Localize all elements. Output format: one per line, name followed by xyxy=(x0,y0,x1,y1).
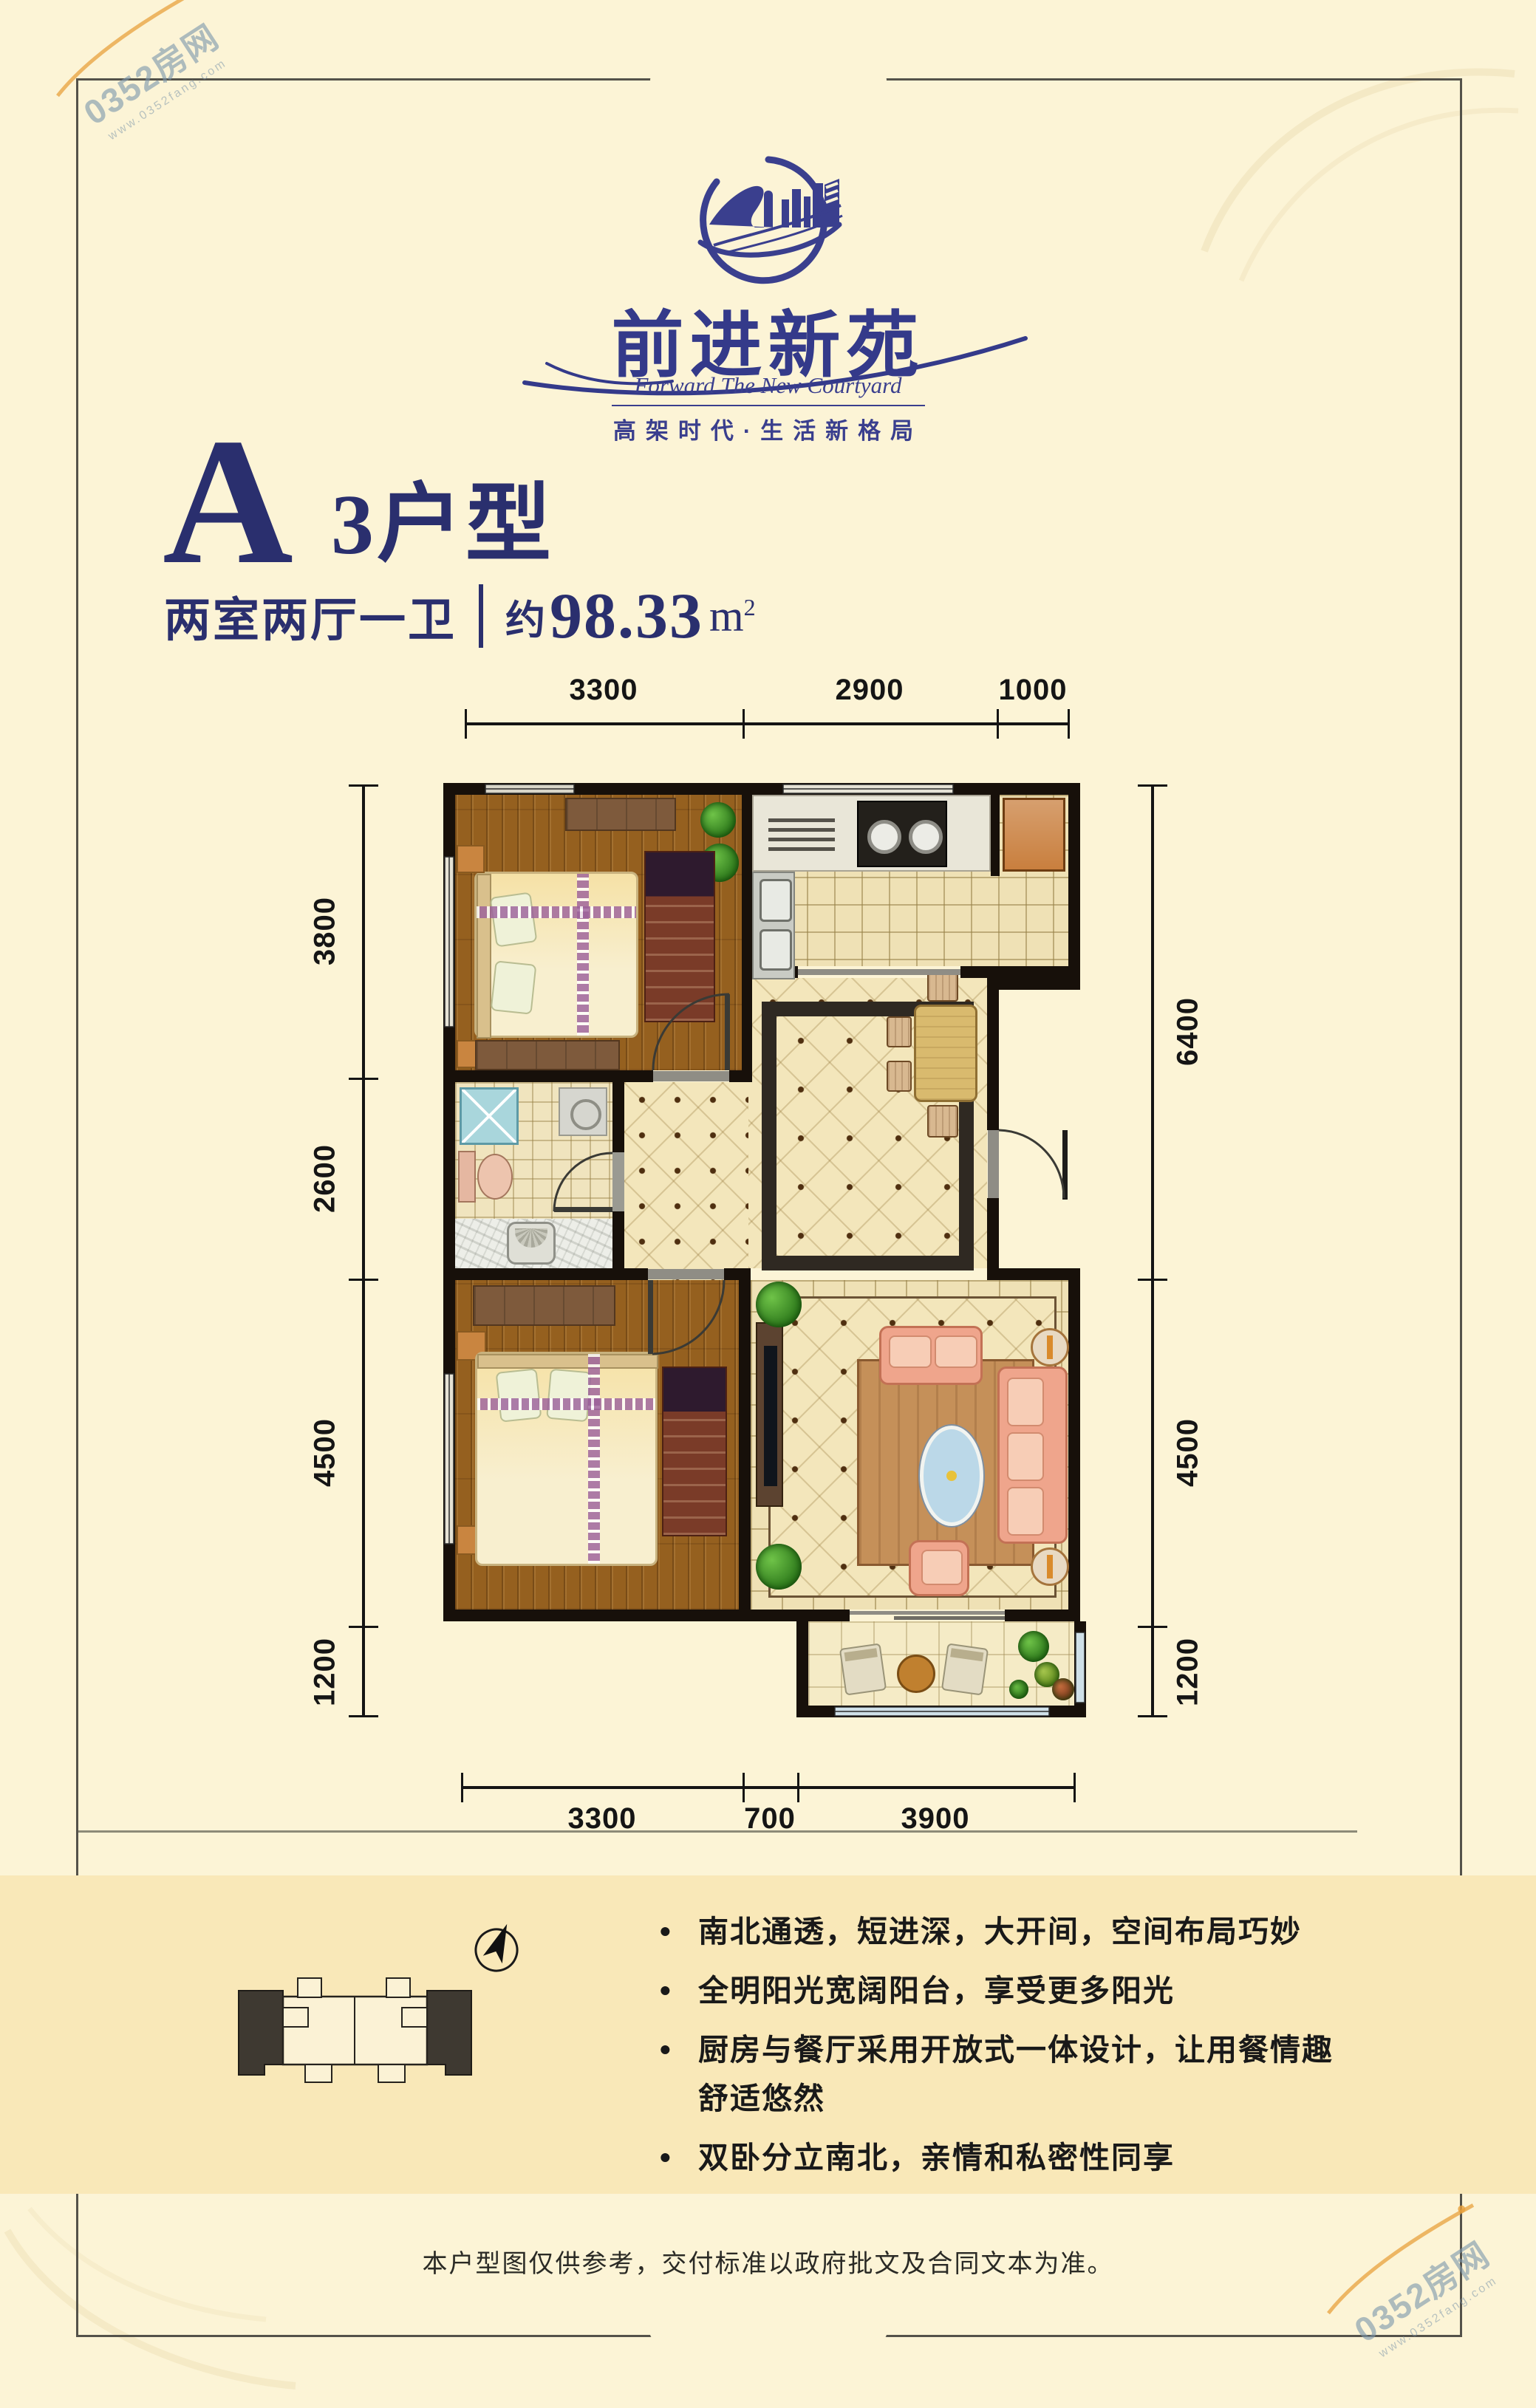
dim-label-right-3: 1200 xyxy=(1172,1613,1205,1731)
unit-type-letter: A xyxy=(163,411,293,592)
dim-tick xyxy=(743,709,745,739)
feature-text: 南北通透，短进深，大开间，空间布局巧妙 xyxy=(698,1907,1334,1956)
feature-text: 全明阳光宽阔阳台，享受更多阳光 xyxy=(698,1966,1334,2015)
dim-tick xyxy=(349,1279,378,1281)
dim-label-right-1: 6400 xyxy=(1172,973,1205,1091)
logo-divider-line xyxy=(612,405,925,406)
disclaimer-text: 本户型图仅供参考，交付标准以政府批文及合同文本为准。 xyxy=(0,2243,1536,2279)
area-unit-m: m xyxy=(709,592,744,640)
area-unit: m2 xyxy=(709,591,756,642)
dim-label-left-4: 1200 xyxy=(309,1613,342,1731)
key-plan xyxy=(214,1920,525,2142)
dim-tick xyxy=(461,1773,463,1802)
dim-label-left-2: 2600 xyxy=(309,1120,342,1238)
feature-list: • 南北通透，短进深，大开间，空间布局巧妙 • 全明阳光宽阔阳台，享受更多阳光 … xyxy=(660,1907,1421,2192)
dim-label-left-3: 4500 xyxy=(309,1394,342,1512)
doors-windows-overlay xyxy=(443,783,1086,1717)
ornament-mask xyxy=(650,2312,887,2356)
dim-label-left-1: 3800 xyxy=(309,872,342,991)
area-value: 98.33 xyxy=(550,579,703,654)
dim-line-right xyxy=(1151,784,1154,1717)
bullet-icon: • xyxy=(660,1966,698,2015)
dim-line-left xyxy=(362,784,365,1717)
floor-plan xyxy=(443,783,1086,1717)
feature-item: • 全明阳光宽阔阳台，享受更多阳光 xyxy=(660,1966,1421,2015)
dim-tick xyxy=(349,1078,378,1080)
ornament-mask xyxy=(650,58,887,102)
dim-tick xyxy=(349,1626,378,1628)
bullet-icon: • xyxy=(660,2133,698,2182)
area-unit-exp: 2 xyxy=(744,594,756,620)
dim-label-top-3: 1000 xyxy=(974,674,1092,707)
dim-label-top-1: 3300 xyxy=(545,674,663,707)
dim-line-bottom xyxy=(461,1786,1076,1789)
dim-tick xyxy=(997,709,999,739)
top-ornament xyxy=(643,44,894,115)
unit-rooms: 两室两厅一卫 xyxy=(164,583,457,650)
subtitle-divider xyxy=(479,584,483,648)
project-name-english: Forward The New Courtyard xyxy=(0,372,1536,399)
bullet-icon: • xyxy=(660,1907,698,1956)
dim-tick xyxy=(349,784,378,787)
band-divider-line xyxy=(78,1830,1357,1833)
dim-tick xyxy=(1138,1715,1167,1717)
feature-item: • 南北通透，短进深，大开间，空间布局巧妙 xyxy=(660,1907,1421,1956)
dim-tick xyxy=(797,1773,799,1802)
feature-text: 双卧分立南北，亲情和私密性同享 xyxy=(698,2133,1334,2182)
feature-item: • 厨房与餐厅采用开放式一体设计，让用餐情趣舒适悠然 xyxy=(660,2025,1421,2123)
dim-tick xyxy=(1138,1279,1167,1281)
dim-tick xyxy=(349,1715,378,1717)
dim-tick xyxy=(1138,1626,1167,1628)
dim-tick xyxy=(1074,1773,1076,1802)
dim-tick xyxy=(743,1773,745,1802)
bottom-ornament xyxy=(643,2299,894,2370)
feature-text: 厨房与餐厅采用开放式一体设计，让用餐情趣舒适悠然 xyxy=(698,2025,1334,2123)
dim-tick xyxy=(1138,784,1167,787)
poster-page: 0352房网 www.0352fang.com 0352房网 www.0352f… xyxy=(0,0,1536,2408)
compass-icon xyxy=(470,1920,525,1977)
unit-summary: 两室两厅一卫 约 98.33 m2 xyxy=(164,581,756,651)
dim-line-top xyxy=(465,722,1070,725)
brand-logo-icon xyxy=(687,154,850,287)
unit-type-name: 3户型 xyxy=(331,479,554,573)
feature-item: • 双卧分立南北，亲情和私密性同享 xyxy=(660,2133,1421,2182)
bullet-icon: • xyxy=(660,2025,698,2123)
dim-label-right-2: 4500 xyxy=(1172,1394,1205,1512)
dim-tick xyxy=(1068,709,1070,739)
area-prefix: 约 xyxy=(505,587,545,646)
dim-tick xyxy=(465,709,467,739)
dim-label-top-2: 2900 xyxy=(810,674,929,707)
